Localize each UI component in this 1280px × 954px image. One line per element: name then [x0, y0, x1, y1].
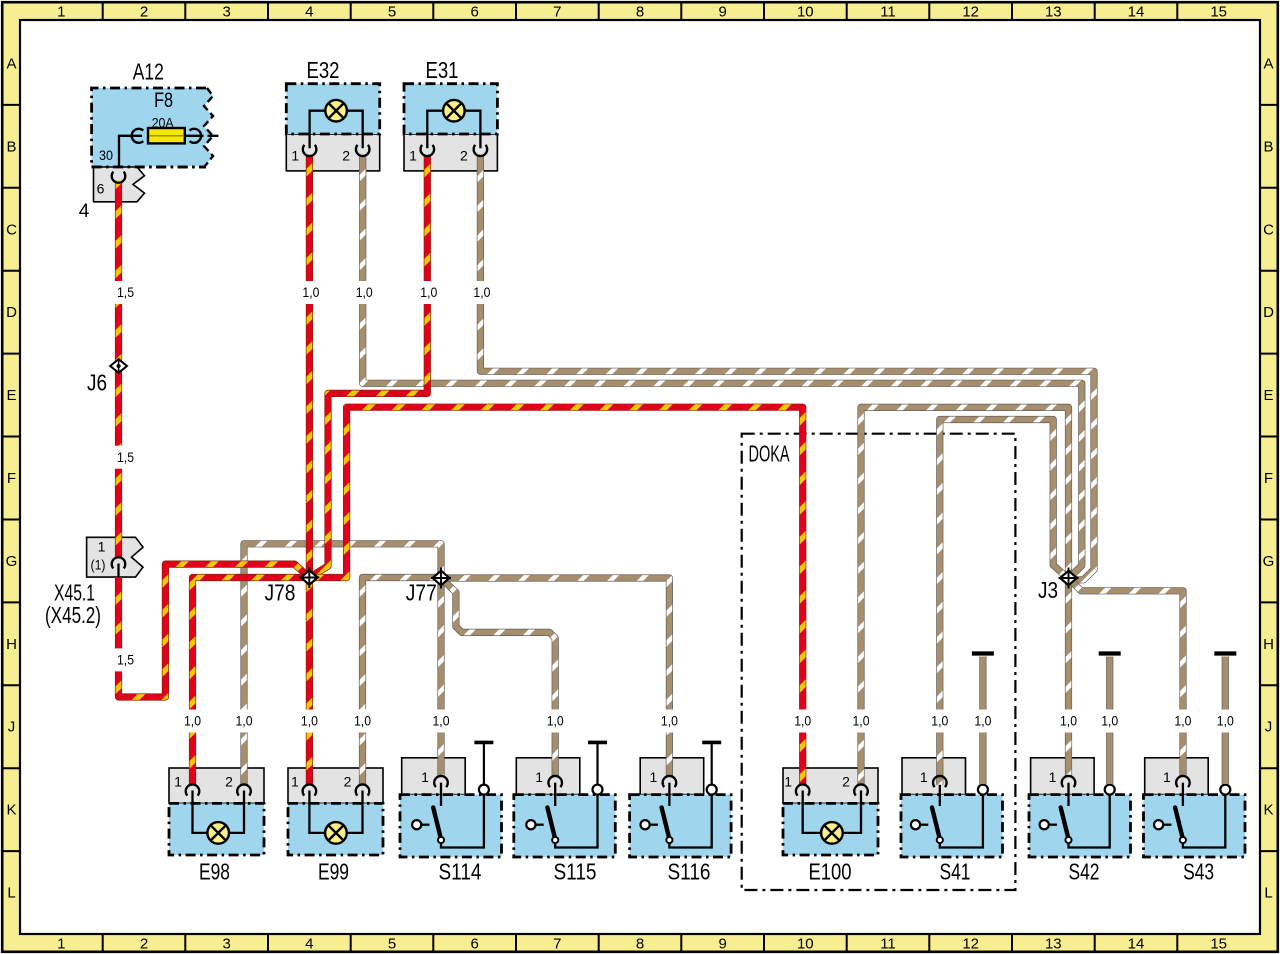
- svg-text:J78: J78: [265, 580, 296, 606]
- svg-text:E98: E98: [199, 859, 230, 885]
- svg-text:1: 1: [57, 936, 65, 953]
- svg-text:1: 1: [409, 148, 417, 164]
- svg-text:F8: F8: [154, 89, 173, 112]
- svg-text:2: 2: [344, 774, 352, 790]
- svg-text:1,0: 1,0: [473, 284, 490, 300]
- svg-text:1,0: 1,0: [301, 713, 318, 729]
- svg-text:S41: S41: [940, 859, 971, 885]
- svg-text:E: E: [1263, 387, 1273, 404]
- svg-text:S116: S116: [668, 859, 711, 885]
- svg-text:14: 14: [1128, 4, 1145, 21]
- svg-text:S114: S114: [439, 859, 482, 885]
- svg-text:4: 4: [305, 4, 313, 21]
- svg-text:2: 2: [460, 148, 468, 164]
- svg-text:1,5: 1,5: [117, 652, 134, 668]
- svg-text:1,0: 1,0: [354, 713, 371, 729]
- svg-text:1,0: 1,0: [1060, 713, 1077, 729]
- svg-text:A12: A12: [133, 59, 164, 85]
- svg-text:J6: J6: [87, 370, 107, 396]
- svg-text:E32: E32: [307, 57, 340, 83]
- svg-text:G: G: [6, 553, 18, 570]
- svg-text:1,0: 1,0: [1217, 713, 1234, 729]
- svg-text:2: 2: [842, 774, 850, 790]
- svg-text:S115: S115: [554, 859, 597, 885]
- svg-text:1: 1: [291, 148, 299, 164]
- svg-text:1: 1: [174, 774, 182, 790]
- svg-text:15: 15: [1210, 936, 1227, 953]
- svg-text:6: 6: [97, 181, 105, 197]
- svg-text:(X45.2): (X45.2): [45, 602, 101, 628]
- svg-text:6: 6: [471, 936, 479, 953]
- svg-text:DOKA: DOKA: [749, 441, 790, 467]
- svg-text:1,0: 1,0: [236, 713, 253, 729]
- svg-text:1: 1: [98, 539, 106, 555]
- svg-text:10: 10: [797, 936, 814, 953]
- svg-text:15: 15: [1210, 4, 1227, 21]
- svg-text:E: E: [6, 387, 16, 404]
- svg-text:F: F: [1264, 470, 1273, 487]
- svg-text:1,0: 1,0: [1101, 713, 1118, 729]
- svg-text:2: 2: [140, 936, 148, 953]
- svg-text:J77: J77: [406, 580, 437, 606]
- svg-text:1,0: 1,0: [433, 713, 450, 729]
- svg-text:1: 1: [920, 769, 928, 785]
- svg-text:H: H: [6, 636, 17, 653]
- svg-text:1: 1: [57, 4, 65, 21]
- svg-text:J3: J3: [1038, 577, 1058, 603]
- svg-text:K: K: [6, 802, 16, 819]
- svg-text:B: B: [6, 138, 16, 155]
- svg-text:1,0: 1,0: [1174, 713, 1191, 729]
- svg-text:1: 1: [1163, 769, 1171, 785]
- svg-text:S43: S43: [1183, 859, 1214, 885]
- svg-text:12: 12: [962, 4, 979, 21]
- svg-text:E100: E100: [809, 859, 852, 885]
- svg-text:C: C: [6, 221, 17, 238]
- svg-text:1: 1: [421, 769, 429, 785]
- svg-text:S42: S42: [1069, 859, 1100, 885]
- svg-text:1,0: 1,0: [184, 713, 201, 729]
- svg-text:E31: E31: [426, 57, 459, 83]
- svg-text:F: F: [7, 470, 16, 487]
- svg-text:12: 12: [962, 936, 979, 953]
- svg-text:1,0: 1,0: [794, 713, 811, 729]
- svg-text:G: G: [1263, 553, 1275, 570]
- svg-text:2: 2: [342, 148, 350, 164]
- svg-text:1,0: 1,0: [420, 284, 437, 300]
- svg-text:8: 8: [636, 4, 644, 21]
- svg-text:1: 1: [650, 769, 658, 785]
- svg-text:1,0: 1,0: [302, 284, 319, 300]
- svg-text:J: J: [8, 719, 16, 736]
- svg-text:1,0: 1,0: [974, 713, 991, 729]
- svg-text:E99: E99: [318, 859, 349, 885]
- svg-text:13: 13: [1045, 4, 1062, 21]
- svg-text:L: L: [7, 885, 15, 902]
- svg-text:1,5: 1,5: [117, 284, 134, 300]
- svg-text:1,0: 1,0: [661, 713, 678, 729]
- svg-text:3: 3: [223, 4, 231, 21]
- svg-text:2: 2: [225, 774, 233, 790]
- svg-text:(1): (1): [91, 557, 106, 573]
- svg-text:J: J: [1265, 719, 1273, 736]
- svg-text:7: 7: [553, 936, 561, 953]
- svg-text:1,0: 1,0: [547, 713, 564, 729]
- svg-text:1,0: 1,0: [356, 284, 373, 300]
- svg-text:8: 8: [636, 936, 644, 953]
- svg-text:A: A: [6, 56, 16, 73]
- svg-text:11: 11: [880, 4, 896, 21]
- svg-text:D: D: [1263, 304, 1274, 321]
- svg-text:4: 4: [79, 201, 90, 222]
- svg-text:1: 1: [1049, 769, 1057, 785]
- svg-text:C: C: [1263, 221, 1274, 238]
- svg-text:6: 6: [471, 4, 479, 21]
- svg-text:7: 7: [553, 4, 561, 21]
- svg-text:1,5: 1,5: [117, 449, 134, 465]
- svg-text:9: 9: [719, 4, 727, 21]
- svg-text:H: H: [1263, 636, 1274, 653]
- svg-text:1: 1: [291, 774, 299, 790]
- svg-text:2: 2: [140, 4, 148, 21]
- svg-text:11: 11: [880, 936, 896, 953]
- svg-text:B: B: [1263, 138, 1273, 155]
- svg-text:5: 5: [388, 936, 396, 953]
- svg-text:1,0: 1,0: [853, 713, 870, 729]
- svg-text:4: 4: [305, 936, 313, 953]
- svg-text:1: 1: [535, 769, 543, 785]
- svg-text:5: 5: [388, 4, 396, 21]
- svg-text:D: D: [6, 304, 17, 321]
- svg-text:14: 14: [1128, 936, 1145, 953]
- svg-text:3: 3: [223, 936, 231, 953]
- svg-text:1: 1: [784, 774, 792, 790]
- svg-text:L: L: [1264, 885, 1272, 902]
- svg-text:A: A: [1263, 56, 1273, 73]
- svg-text:9: 9: [719, 936, 727, 953]
- svg-text:13: 13: [1045, 936, 1062, 953]
- svg-text:K: K: [1263, 802, 1273, 819]
- svg-text:10: 10: [797, 4, 814, 21]
- svg-text:1,0: 1,0: [931, 713, 948, 729]
- svg-text:30: 30: [99, 147, 113, 163]
